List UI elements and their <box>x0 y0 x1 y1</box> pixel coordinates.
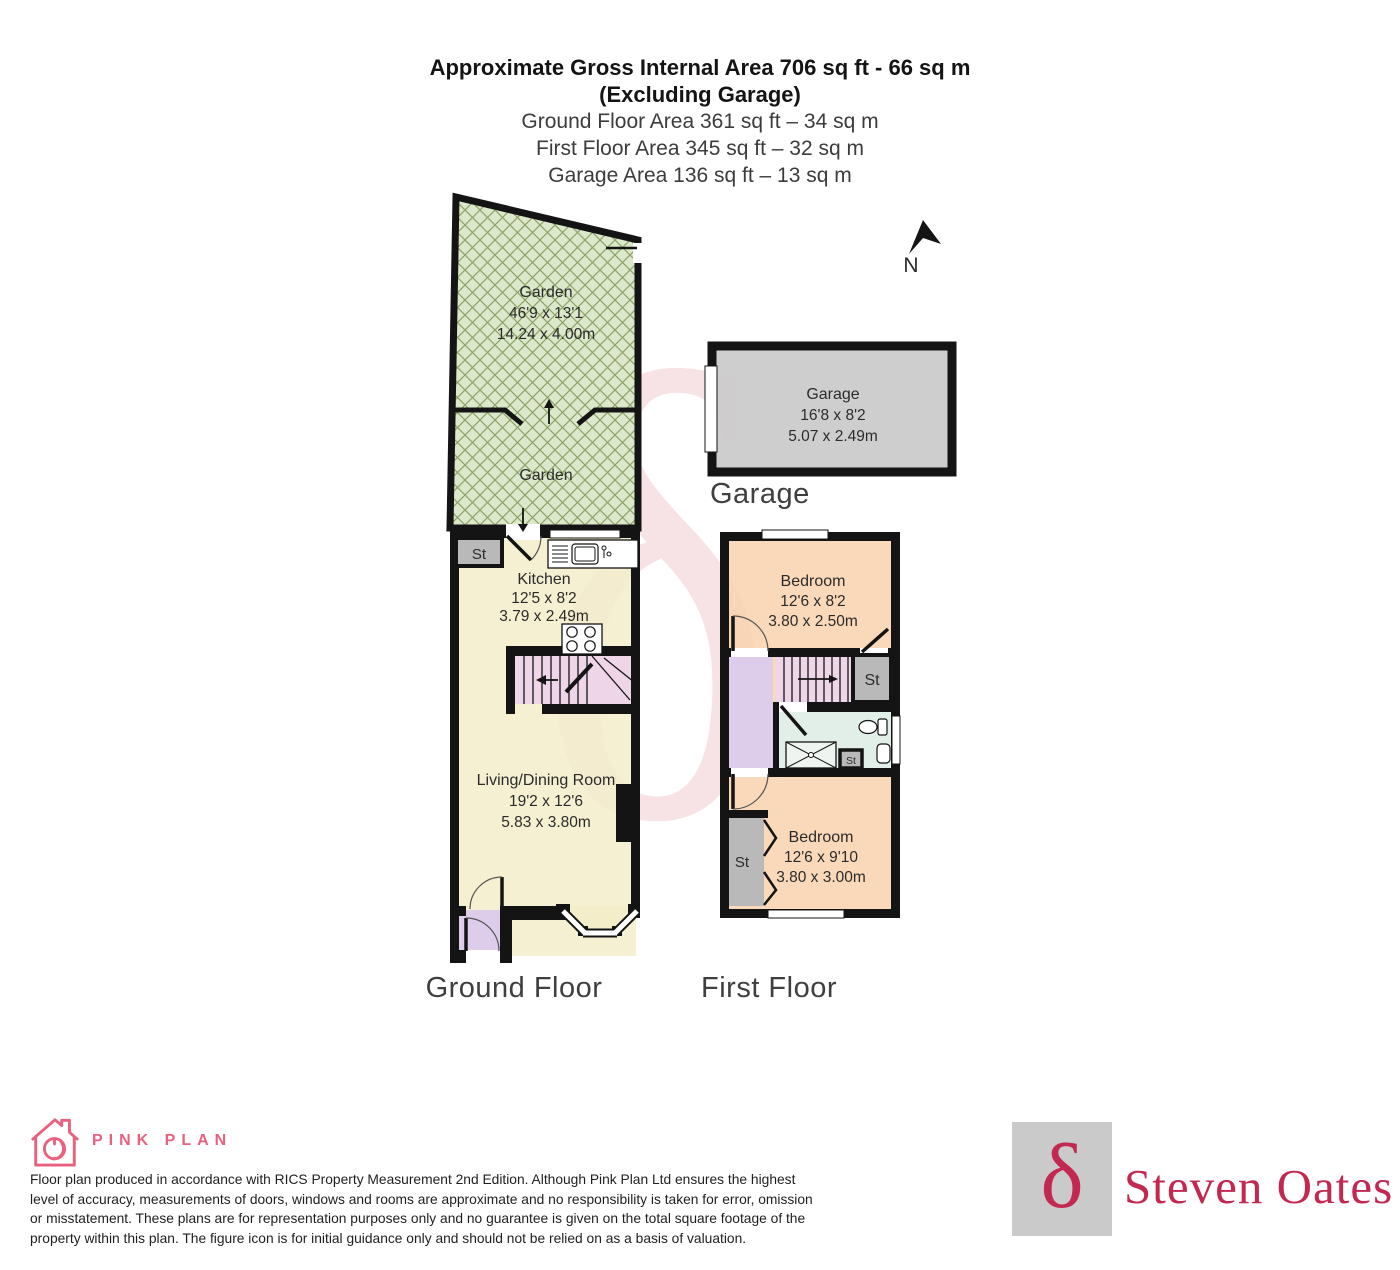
bedroom-front-imperial: 12'6 x 8'2 <box>780 593 845 610</box>
bedroom-back-name: Bedroom <box>789 829 854 846</box>
bathroom-storage-label: St <box>846 755 856 767</box>
excluding-garage-line: (Excluding Garage) <box>0 81 1400 108</box>
floor-plan-svg: Garden 46'9 x 13'1 14.24 x 4.00m Garden … <box>0 0 1400 1270</box>
north-label: N <box>903 254 918 277</box>
floorplan-page: Approximate Gross Internal Area 706 sq f… <box>0 0 1400 1270</box>
living-dining-imperial: 19'2 x 12'6 <box>509 793 583 810</box>
bedroom-back-imperial: 12'6 x 9'10 <box>784 849 858 866</box>
first-floor-area-line: First Floor Area 345 sq ft – 32 sq m <box>0 135 1400 162</box>
bedroom-front-metric: 3.80 x 2.50m <box>768 613 858 630</box>
back-storage-label: St <box>735 854 750 871</box>
ground-floor-title: Ground Floor <box>426 972 603 1004</box>
basin-icon <box>877 744 890 763</box>
kitchen-name: Kitchen <box>517 571 570 588</box>
living-dining-name: Living/Dining Room <box>477 772 616 789</box>
garage-floor-title: Garage <box>710 478 810 510</box>
disclaimer-line: level of accuracy, measurements of doors… <box>30 1190 813 1210</box>
disclaimer-text: Floor plan produced in accordance with R… <box>30 1170 813 1248</box>
bedroom-front-name: Bedroom <box>781 573 846 590</box>
footer: PINK PLAN Floor plan produced in accorda… <box>0 1100 1400 1270</box>
kitchen-window <box>550 530 620 538</box>
garage-door-opening <box>705 366 717 452</box>
garage-imperial: 16'8 x 8'2 <box>800 407 865 424</box>
toilet-icon <box>859 719 887 735</box>
bedroom-back-window <box>768 910 844 918</box>
garage-plan: Garage 16'8 x 8'2 5.07 x 2.49m Garage <box>705 346 952 510</box>
bedroom-back-door-opening <box>731 768 768 777</box>
garden-area: Garden 46'9 x 13'1 14.24 x 4.00m Garden <box>450 197 643 528</box>
bedroom-front-door-opening <box>731 648 768 657</box>
disclaimer-line: or misstatement. These plans are for rep… <box>30 1209 813 1229</box>
sink-unit-icon <box>548 540 638 568</box>
bathroom-storage: St <box>840 750 862 768</box>
garden-gate-opening <box>633 243 643 263</box>
garage-area-line: Garage Area 136 sq ft – 13 sq m <box>0 162 1400 189</box>
living-dining-metric: 5.83 x 3.80m <box>501 814 591 831</box>
garden-upper-imperial: 46'9 x 13'1 <box>509 305 583 322</box>
ground-floor-area-line: Ground Floor Area 361 sq ft – 34 sq m <box>0 108 1400 135</box>
disclaimer-line: property within this plan. The figure ic… <box>30 1229 813 1249</box>
ground-floor-plan: St <box>426 508 640 1004</box>
disclaimer-line: Floor plan produced in accordance with R… <box>30 1170 813 1190</box>
north-arrow-icon: N <box>903 220 941 277</box>
bathroom-window <box>892 716 900 764</box>
ground-storage-label: St <box>472 546 487 563</box>
first-storage-label: St <box>864 672 880 689</box>
first-stairs <box>776 656 852 702</box>
kitchen-metric: 3.79 x 2.49m <box>499 608 589 625</box>
first-floor-plan: St St St <box>701 530 900 1004</box>
first-floor-title: First Floor <box>701 972 837 1004</box>
brand-name: PINK PLAN <box>92 1132 232 1150</box>
gross-area-line: Approximate Gross Internal Area 706 sq f… <box>0 54 1400 81</box>
hob-icon <box>562 624 602 654</box>
front-door-opening <box>466 950 500 963</box>
agent-name: Steven Oates <box>1124 1158 1393 1215</box>
bedroom-front-window <box>762 530 828 539</box>
ground-stairs <box>515 656 634 704</box>
garden-upper-name: Garden <box>519 284 572 301</box>
agent-logo: δ <box>1012 1122 1112 1236</box>
garden-upper-metric: 14.24 x 4.00m <box>497 326 595 343</box>
header: Approximate Gross Internal Area 706 sq f… <box>0 54 1400 189</box>
shower-icon <box>786 742 836 768</box>
garage-name: Garage <box>806 386 859 403</box>
north-arrow-shape <box>909 220 941 254</box>
bedroom-front-label: Bedroom 12'6 x 8'2 3.80 x 2.50m <box>768 573 858 630</box>
landing-fill <box>729 657 773 768</box>
kitchen-imperial: 12'5 x 8'2 <box>511 590 576 607</box>
bedroom-back-label: Bedroom 12'6 x 9'10 3.80 x 3.00m <box>776 829 866 886</box>
bedroom-back-metric: 3.80 x 3.00m <box>776 869 866 886</box>
garden-lower-name: Garden <box>519 467 572 484</box>
garage-metric: 5.07 x 2.49m <box>788 428 878 445</box>
agent-delta-icon: δ <box>1040 1130 1083 1222</box>
pink-plan-logo-icon <box>28 1112 82 1170</box>
